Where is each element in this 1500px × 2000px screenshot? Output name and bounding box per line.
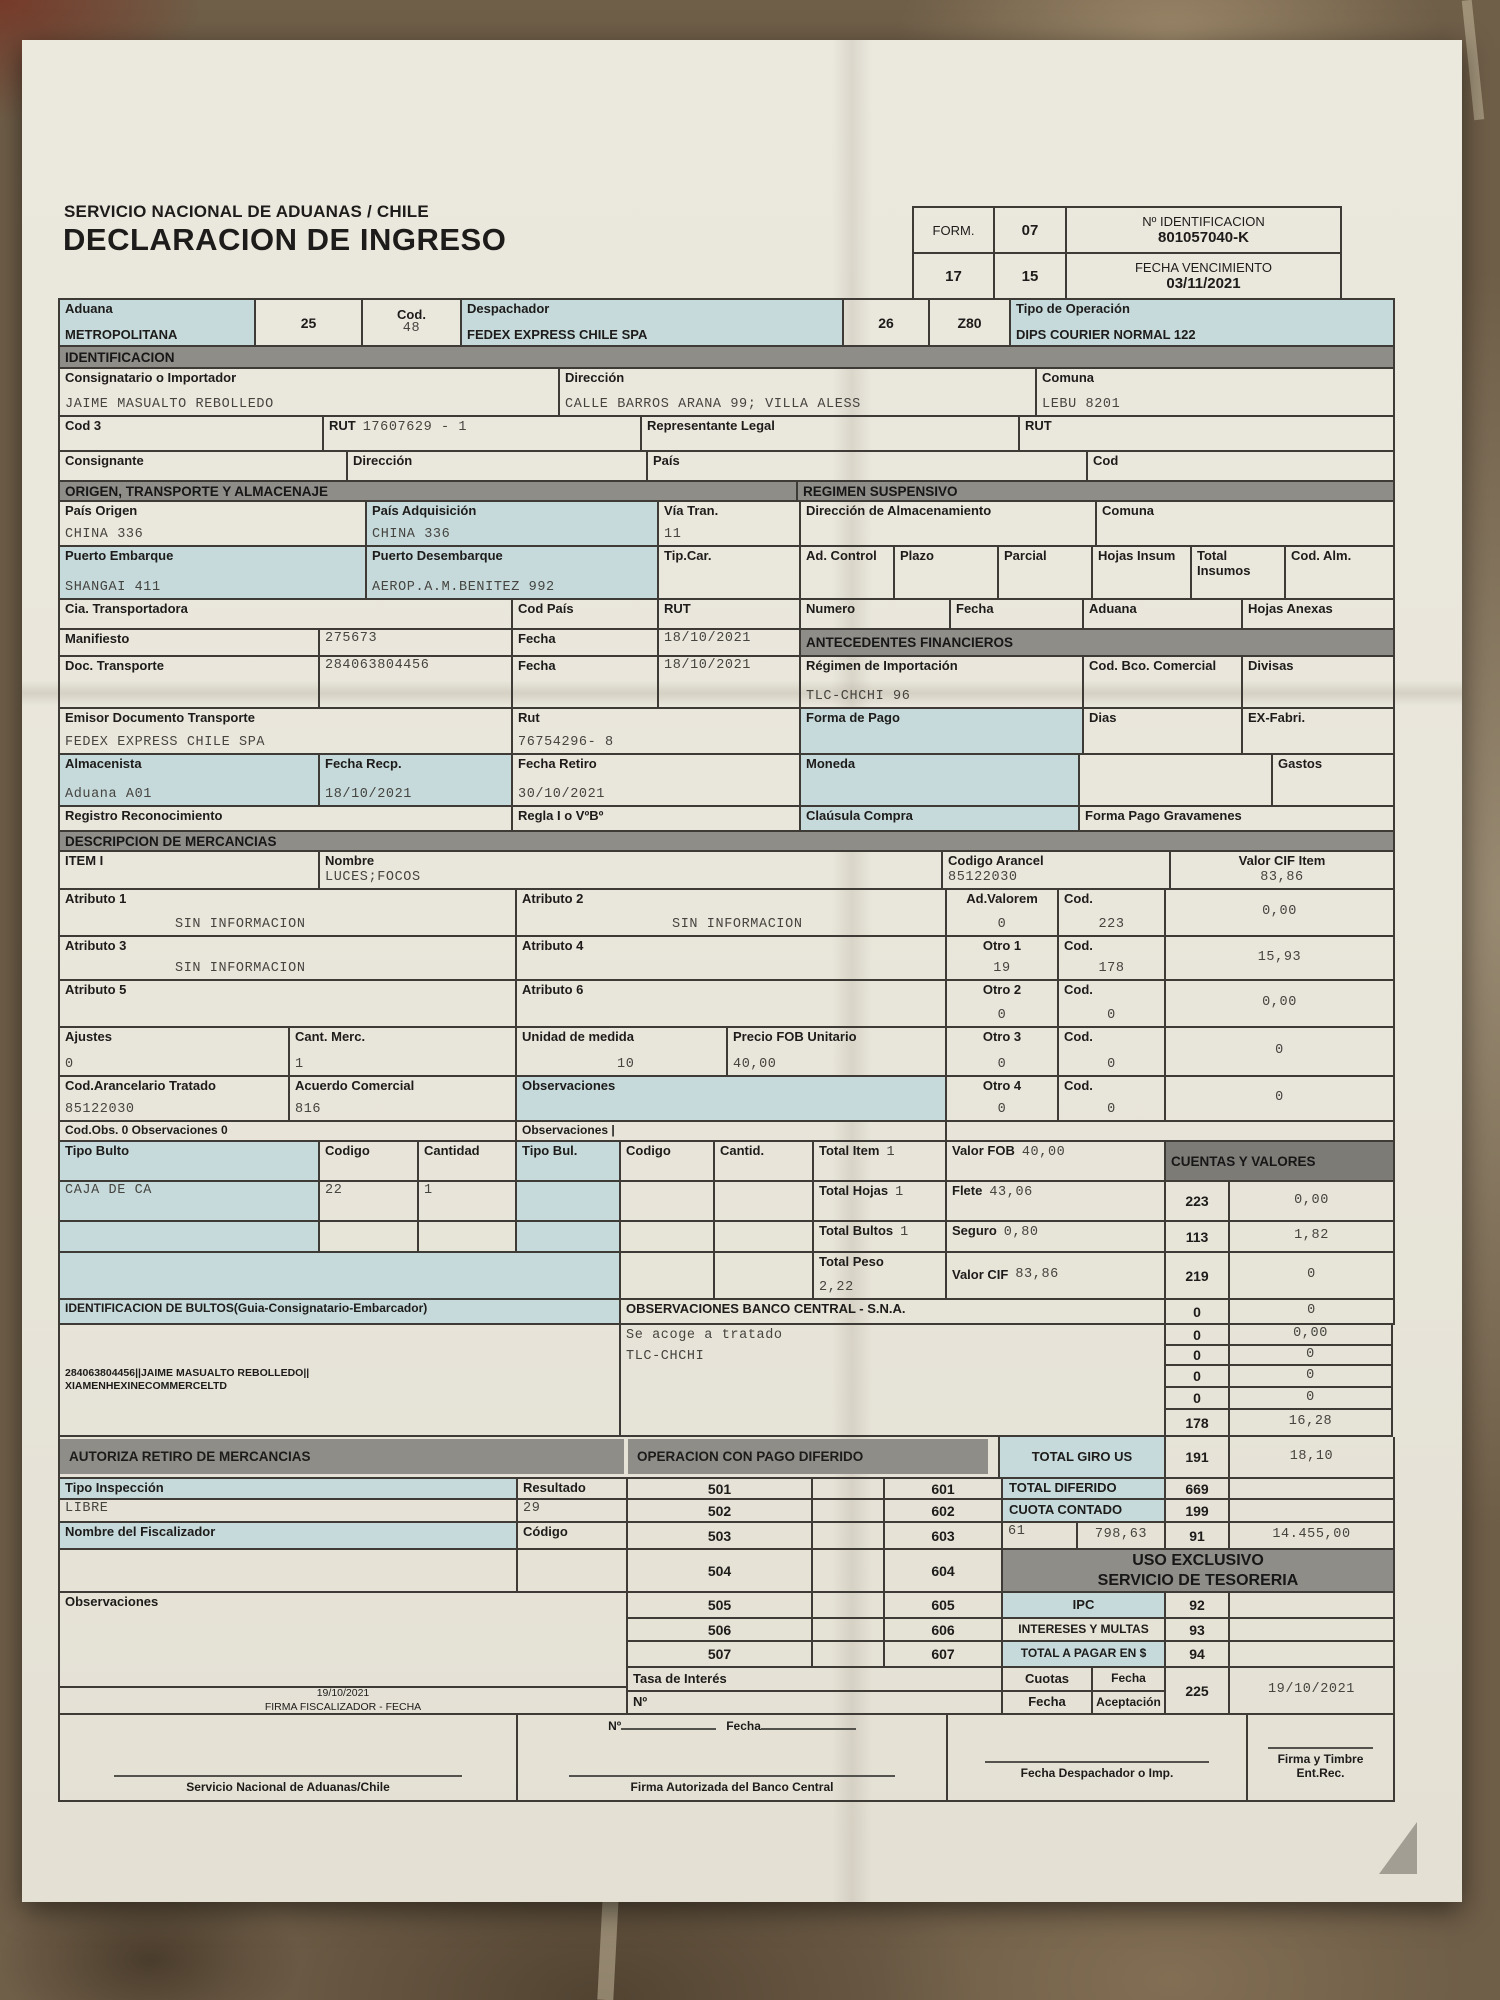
field-cod-48: Cod.48 bbox=[363, 300, 462, 347]
codigo-607: 607 bbox=[883, 1642, 1003, 1668]
table-row: Total Bultos1 Seguro0,80 113 1,82 bbox=[58, 1222, 1395, 1253]
empty-cell bbox=[58, 1253, 621, 1300]
box-15: 15 bbox=[993, 254, 1065, 298]
cuenta-valor-219: 0 bbox=[1230, 1253, 1395, 1300]
field-nombre-mercancia: NombreLUCES;FOCOS bbox=[320, 852, 943, 890]
field-item: ITEM I bbox=[58, 852, 320, 890]
empty-cell bbox=[1230, 1593, 1395, 1619]
codigo-507: 507 bbox=[628, 1642, 813, 1668]
field-atributo-6: Atributo 6 bbox=[517, 981, 947, 1028]
document-title: DECLARACION DE INGRESO bbox=[63, 222, 506, 258]
table-row: Atributo 5 Atributo 6 Otro 20 Cod.0 0,00 bbox=[58, 981, 1395, 1028]
field-total-pagar: TOTAL A PAGAR EN $ bbox=[1003, 1642, 1166, 1668]
empty-cell bbox=[518, 1550, 628, 1593]
field-codigo-bulto-value: 22 bbox=[320, 1182, 419, 1222]
empty-cell bbox=[1230, 1619, 1395, 1642]
field-tipo-inspeccion-value: LIBRE bbox=[58, 1500, 518, 1523]
field-cod3: Cod 3 bbox=[58, 417, 324, 452]
field-rut-cia: RUT bbox=[659, 600, 801, 630]
table-row: Cod.Arancelario Tratado85122030 Acuerdo … bbox=[58, 1077, 1395, 1122]
codigo-603: 603 bbox=[883, 1523, 1003, 1550]
field-z80: Z80 bbox=[930, 300, 1011, 347]
field-forma-de-pago: Forma de Pago bbox=[801, 709, 1084, 755]
field-fecha-retiro: Fecha Retiro30/10/2021 bbox=[513, 755, 801, 807]
field-direccion-consignante: Dirección bbox=[348, 452, 648, 482]
codigo-604: 604 bbox=[883, 1550, 1003, 1593]
field-cod-arancelario-tratado: Cod.Arancelario Tratado85122030 bbox=[58, 1077, 290, 1122]
cuenta-valor-4: 0 bbox=[1230, 1300, 1395, 1325]
cuenta-codigo-178: 178 bbox=[1166, 1410, 1230, 1437]
table-row: Observaciones 505 605 IPC 92 bbox=[58, 1593, 1395, 1619]
field-ad-valorem: Ad.Valorem0 bbox=[947, 890, 1059, 937]
photo-of-customs-form: { "page": { "agency": "SERVICIO NACIONAL… bbox=[0, 0, 1500, 2000]
field-fecha-doc: Fecha bbox=[513, 657, 659, 709]
empty-cell bbox=[947, 1122, 1395, 1142]
tile-grout-line bbox=[1462, 0, 1484, 120]
field-aduana-2: Aduana bbox=[1084, 600, 1243, 630]
numero-fecha-line: Nº Fecha bbox=[523, 1719, 941, 1733]
signature-line bbox=[1268, 1747, 1373, 1749]
codigo-602: 602 bbox=[883, 1500, 1003, 1523]
codigo-606: 606 bbox=[883, 1619, 1003, 1642]
codigo-225: 225 bbox=[1166, 1668, 1230, 1715]
empty-cell bbox=[58, 1642, 628, 1668]
field-valor-cif-item: Valor CIF Item83,86 bbox=[1171, 852, 1395, 890]
section-descripcion-mercancias: DESCRIPCION DE MERCANCIAS bbox=[58, 832, 1395, 852]
field-aduana: AduanaMETROPOLITANA bbox=[58, 300, 256, 347]
field-clausula-compra: Claúsula Compra bbox=[801, 807, 1080, 832]
section-uso-exclusivo-tesoreria: USO EXCLUSIVO SERVICIO DE TESORERIA bbox=[1003, 1550, 1395, 1593]
field-comuna: ComunaLEBU 8201 bbox=[1037, 369, 1395, 417]
empty-cell bbox=[1230, 1500, 1395, 1523]
field-pais-origen: País OrigenCHINA 336 bbox=[58, 502, 367, 547]
cuenta-codigo-6: 0 bbox=[1166, 1346, 1230, 1366]
table-row: Atributo 3SIN INFORMACION Atributo 4 Otr… bbox=[58, 937, 1395, 981]
cuenta-valor-191: 18,10 bbox=[1230, 1437, 1395, 1479]
section-origen-transporte: ORIGEN, TRANSPORTE Y ALMACENAJE bbox=[58, 482, 798, 502]
field-cod-otro3: Cod.0 bbox=[1059, 1028, 1166, 1077]
identification-number-cell: Nº IDENTIFICACION 801057040-K bbox=[1065, 208, 1340, 252]
field-valor-4: 0 bbox=[1166, 1028, 1395, 1077]
tile-grout-line bbox=[597, 1896, 618, 2000]
cuenta-valor-7: 0 bbox=[1230, 1366, 1393, 1388]
gap-cell bbox=[813, 1479, 883, 1500]
field-aduana-value: METROPOLITANA bbox=[65, 328, 249, 343]
field-direccion: DirecciónCALLE BARROS ARANA 99; VILLA AL… bbox=[560, 369, 1037, 417]
table-row: Ajustes0 Cant. Merc.1 Unidad de medida10… bbox=[58, 1028, 1395, 1077]
declaration-table: AduanaMETROPOLITANA 25 Cod.48 Despachado… bbox=[58, 298, 1395, 1802]
field-total-item: Total Item1 bbox=[814, 1142, 947, 1182]
field-regimen-importacion: Régimen de ImportaciónTLC-CHCHI 96 bbox=[801, 657, 1084, 709]
field-cod-consignante: Cod bbox=[1088, 452, 1395, 482]
cuenta-codigo-191: 191 bbox=[1166, 1437, 1230, 1479]
field-fecha-aceptacion: Fecha Aceptación bbox=[1093, 1668, 1166, 1715]
due-date-label: FECHA VENCIMIENTO bbox=[1135, 260, 1272, 275]
box-17: 17 bbox=[914, 254, 993, 298]
cuenta-valor-6: 0 bbox=[1230, 1346, 1393, 1366]
gap-cell bbox=[813, 1523, 883, 1550]
gap-cell bbox=[813, 1550, 883, 1593]
section-regimen-suspensivo: REGIMEN SUSPENSIVO bbox=[798, 482, 1395, 502]
codigo-506: 506 bbox=[628, 1619, 813, 1642]
field-cod-otro4: Cod.0 bbox=[1059, 1077, 1166, 1122]
table-row: Tipo Inspección Resultado 501 601 TOTAL … bbox=[58, 1479, 1395, 1500]
field-forma-pago-gravamenes: Forma Pago Gravamenes bbox=[1080, 807, 1395, 832]
codigo-505: 505 bbox=[628, 1593, 813, 1619]
field-ad-control: Ad. Control bbox=[801, 547, 895, 600]
field-plazo: Plazo bbox=[895, 547, 999, 600]
cuenta-valor-113: 1,82 bbox=[1230, 1222, 1395, 1253]
table-row: 284063804456||JAIME MASUALTO REBOLLEDO||… bbox=[58, 1325, 1395, 1437]
field-moneda: Moneda bbox=[801, 755, 1080, 807]
field-codigo-bulto-2: Codigo bbox=[621, 1142, 715, 1182]
table-row: ITEM I NombreLUCES;FOCOS Codigo Arancel8… bbox=[58, 852, 1395, 890]
signature-box-aduanas: Servicio Nacional de Aduanas/Chile bbox=[58, 1715, 518, 1802]
field-atributo-3: Atributo 3SIN INFORMACION bbox=[58, 937, 517, 981]
cuenta-valor-223: 0,00 bbox=[1230, 1182, 1395, 1222]
field-regla: Regla I o VºBº bbox=[513, 807, 801, 832]
field-total-hojas: Total Hojas1 bbox=[814, 1182, 947, 1222]
codigo-199: 199 bbox=[1166, 1500, 1230, 1523]
field-observaciones-mercancia: Observaciones bbox=[517, 1077, 947, 1122]
gap-cell bbox=[813, 1500, 883, 1523]
field-valor-1: 0,00 bbox=[1166, 890, 1395, 937]
field-resultado: Resultado bbox=[518, 1479, 628, 1500]
field-gastos: Gastos bbox=[1273, 755, 1395, 807]
table-row: Consignante Dirección País Cod bbox=[58, 452, 1395, 482]
field-tipo-bulto-2: Tipo Bul. bbox=[517, 1142, 621, 1182]
blank-line bbox=[761, 1728, 856, 1730]
field-fecha-manifiesto-value: 18/10/2021 bbox=[659, 630, 801, 657]
field-parcial: Parcial bbox=[999, 547, 1093, 600]
field-otro-1: Otro 119 bbox=[947, 937, 1059, 981]
field-total-peso: Total Peso2,22 bbox=[814, 1253, 947, 1300]
field-valor-2: 15,93 bbox=[1166, 937, 1395, 981]
field-cantidad-mercancia: Cant. Merc.1 bbox=[290, 1028, 517, 1077]
field-fecha-recepcion: Fecha Recp.18/10/2021 bbox=[320, 755, 513, 807]
table-row: AUTORIZA RETIRO DE MERCANCIAS OPERACION … bbox=[58, 1437, 1395, 1479]
field-atributo-5: Atributo 5 bbox=[58, 981, 517, 1028]
cuenta-codigo-5: 0 bbox=[1166, 1325, 1230, 1346]
section-operacion-pago-diferido: OPERACION CON PAGO DIFERIDO bbox=[628, 1437, 998, 1479]
field-rut-representante: RUT bbox=[1020, 417, 1395, 452]
table-row: IDENTIFICACION bbox=[58, 347, 1395, 369]
field-tipo-bulto: Tipo Bulto bbox=[58, 1142, 320, 1182]
cuenta-valor-5: 0,00 bbox=[1230, 1325, 1393, 1346]
field-flete: Flete43,06 bbox=[947, 1182, 1166, 1222]
cuenta-codigo-8: 0 bbox=[1166, 1388, 1230, 1410]
field-identificacion-bultos: IDENTIFICACION DE BULTOS(Guia-Consignata… bbox=[58, 1300, 621, 1325]
empty-cell bbox=[1230, 1642, 1395, 1668]
field-ajustes: Ajustes0 bbox=[58, 1028, 290, 1077]
field-valor-fob-total: Valor FOB40,00 bbox=[947, 1142, 1166, 1182]
field-despachador-value: FEDEX EXPRESS CHILE SPA bbox=[467, 328, 837, 343]
field-codigo-bulto: Codigo bbox=[320, 1142, 419, 1182]
cuenta-codigo-223: 223 bbox=[1166, 1182, 1230, 1222]
field-dias: Dias bbox=[1084, 709, 1243, 755]
field-total-bultos: Total Bultos1 bbox=[814, 1222, 947, 1253]
empty-cell bbox=[715, 1253, 814, 1300]
field-cuota-contado: CUOTA CONTADO bbox=[1003, 1500, 1166, 1523]
blank-line bbox=[621, 1728, 716, 1730]
codigo-93: 93 bbox=[1166, 1619, 1230, 1642]
field-cuotas-fecha: Cuotas Fecha bbox=[1003, 1668, 1093, 1715]
field-tipo-inspeccion: Tipo Inspección bbox=[58, 1479, 518, 1500]
empty-cell bbox=[621, 1182, 715, 1222]
field-doc-transporte-value: 284063804456 bbox=[320, 657, 513, 709]
table-row: Registro Reconocimiento Regla I o VºBº C… bbox=[58, 807, 1395, 832]
gap-cell bbox=[813, 1642, 883, 1668]
field-almacenista: AlmacenistaAduana A01 bbox=[58, 755, 320, 807]
field-unidad-medida: Unidad de medida10 bbox=[517, 1028, 728, 1077]
field-valor-5: 0 bbox=[1166, 1077, 1395, 1122]
table-row: Tipo Bulto Codigo Cantidad Tipo Bul. Cod… bbox=[58, 1142, 1395, 1182]
empty-cell bbox=[58, 1550, 518, 1593]
field-hojas-insum: Hojas Insum bbox=[1093, 547, 1192, 600]
table-row: 506 606 INTERESES Y MULTAS 93 bbox=[58, 1619, 1395, 1642]
empty-cell bbox=[621, 1222, 715, 1253]
field-fecha: Fecha bbox=[951, 600, 1084, 630]
field-aduana-code: 25 bbox=[256, 300, 363, 347]
table-row: AduanaMETROPOLITANA 25 Cod.48 Despachado… bbox=[58, 300, 1395, 347]
field-atributo-2: Atributo 2SIN INFORMACION bbox=[517, 890, 947, 937]
field-hojas-anexas: Hojas Anexas bbox=[1243, 600, 1395, 630]
field-cia-transportadora: Cia. Transportadora bbox=[58, 600, 513, 630]
form-value: 07 bbox=[1022, 222, 1039, 239]
empty-cell bbox=[715, 1182, 814, 1222]
table-row: Nombre del Fiscalizador Código 503 603 6… bbox=[58, 1523, 1395, 1550]
firma-fiscalizador-area: 19/10/2021 FIRMA FISCALIZADOR - FECHA bbox=[58, 1668, 628, 1715]
codigo-94: 94 bbox=[1166, 1642, 1230, 1668]
field-rut-emisor: Rut76754296- 8 bbox=[513, 709, 801, 755]
empty-cell bbox=[320, 1222, 419, 1253]
agency-title: SERVICIO NACIONAL DE ADUANAS / CHILE bbox=[64, 202, 429, 222]
field-comuna-value: LEBU 8201 bbox=[1042, 398, 1388, 413]
empty-space bbox=[60, 1668, 626, 1686]
field-otro-2: Otro 20 bbox=[947, 981, 1059, 1028]
field-ipc: IPC bbox=[1003, 1593, 1166, 1619]
codigo-504: 504 bbox=[628, 1550, 813, 1593]
field-manifiesto-value: 275673 bbox=[320, 630, 513, 657]
field-consignante: Consignante bbox=[58, 452, 348, 482]
field-otro-3: Otro 30 bbox=[947, 1028, 1059, 1077]
section-cuentas-valores: CUENTAS Y VALORES bbox=[1166, 1142, 1395, 1182]
field-valor-cif-total: Valor CIF83,86 bbox=[947, 1253, 1166, 1300]
field-cod-banco-comercial: Cod. Bco. Comercial bbox=[1084, 657, 1243, 709]
codigo-91: 91 bbox=[1166, 1523, 1230, 1550]
table-row: AlmacenistaAduana A01 Fecha Recp.18/10/2… bbox=[58, 755, 1395, 807]
field-pais-consignante: País bbox=[648, 452, 1088, 482]
section-autoriza-retiro: AUTORIZA RETIRO DE MERCANCIAS bbox=[58, 1437, 628, 1479]
table-row: 19/10/2021 FIRMA FISCALIZADOR - FECHA Ta… bbox=[58, 1668, 1395, 1715]
due-date-cell: FECHA VENCIMIENTO 03/11/2021 bbox=[1065, 254, 1340, 298]
form-label: FORM. bbox=[933, 223, 975, 238]
field-identificacion-bultos-value: 284063804456||JAIME MASUALTO REBOLLEDO||… bbox=[58, 1325, 621, 1437]
field-comuna-almacenamiento: Comuna bbox=[1097, 502, 1395, 547]
field-cod-obs: Cod.Obs. 0 Observaciones 0 bbox=[58, 1122, 517, 1142]
identification-value: 801057040-K bbox=[1158, 229, 1249, 246]
codigo-502: 502 bbox=[628, 1500, 813, 1523]
field-cod-almacen: Cod. Alm. bbox=[1286, 547, 1395, 600]
cuenta-codigo-7: 0 bbox=[1166, 1366, 1230, 1388]
form-value-cell: 07 bbox=[993, 208, 1065, 252]
field-codigo-fiscalizador: Código bbox=[518, 1523, 628, 1550]
field-cod-223: Cod.223 bbox=[1059, 890, 1166, 937]
field-banco-central-texto: Se acoge a tratado TLC-CHCHI bbox=[621, 1325, 1166, 1437]
table-row: 507 607 TOTAL A PAGAR EN $ 94 bbox=[58, 1642, 1395, 1668]
codigo-601: 601 bbox=[883, 1479, 1003, 1500]
signature-box-despachador: Fecha Despachador o Imp. bbox=[948, 1715, 1248, 1802]
empty-cell bbox=[621, 1253, 715, 1300]
cuenta-codigo-4: 0 bbox=[1166, 1300, 1230, 1325]
codigo-605: 605 bbox=[883, 1593, 1003, 1619]
field-firma-fiscalizador: 19/10/2021 FIRMA FISCALIZADOR - FECHA bbox=[60, 1686, 626, 1713]
codigo-669: 669 bbox=[1166, 1479, 1230, 1500]
field-seguro: Seguro0,80 bbox=[947, 1222, 1166, 1253]
section-identificacion: IDENTIFICACION bbox=[58, 347, 1395, 369]
table-row: ORIGEN, TRANSPORTE Y ALMACENAJE REGIMEN … bbox=[58, 482, 1395, 502]
field-codigo-arancel: Codigo Arancel85122030 bbox=[943, 852, 1171, 890]
field-ex-fabrica: EX-Fabri. bbox=[1243, 709, 1395, 755]
field-divisas: Divisas bbox=[1243, 657, 1395, 709]
codigo-501: 501 bbox=[628, 1479, 813, 1500]
signature-line bbox=[569, 1775, 895, 1777]
table-row: Cod.Obs. 0 Observaciones 0 Observaciones… bbox=[58, 1122, 1395, 1142]
cuenta-valor-178: 16,28 bbox=[1230, 1410, 1393, 1437]
identification-label: Nº IDENTIFICACION bbox=[1142, 214, 1264, 229]
field-intereses-multas: INTERESES Y MULTAS bbox=[1003, 1619, 1166, 1642]
field-emisor-doc-transporte: Emisor Documento TransporteFEDEX EXPRESS… bbox=[58, 709, 513, 755]
table-row: CAJA DE CA 22 1 Total Hojas1 Flete43,06 … bbox=[58, 1182, 1395, 1222]
field-resultado-value: 29 bbox=[518, 1500, 628, 1523]
table-row: 504 604 USO EXCLUSIVO SERVICIO DE TESORE… bbox=[58, 1550, 1395, 1593]
due-date-value: 03/11/2021 bbox=[1166, 275, 1240, 292]
field-valor-3: 0,00 bbox=[1166, 981, 1395, 1028]
field-tasa-interes: Tasa de Interés Nº bbox=[628, 1668, 1003, 1715]
signature-box-timbre: Firma y Timbre Ent.Rec. bbox=[1248, 1715, 1395, 1802]
field-otro-4: Otro 40 bbox=[947, 1077, 1059, 1122]
cuenta-codigo-219: 219 bbox=[1166, 1253, 1230, 1300]
empty-cell bbox=[419, 1222, 517, 1253]
table-row: Servicio Nacional de Aduanas/Chile Nº Fe… bbox=[58, 1715, 1395, 1802]
table-row: Doc. Transporte 284063804456 Fecha 18/10… bbox=[58, 657, 1395, 709]
cuenta-codigo-113: 113 bbox=[1166, 1222, 1230, 1253]
field-fecha-doc-value: 18/10/2021 bbox=[659, 657, 801, 709]
field-representante-legal: Representante Legal bbox=[642, 417, 1020, 452]
empty-cell bbox=[58, 1619, 628, 1642]
empty-cell bbox=[1230, 1479, 1395, 1500]
table-row: LIBRE 29 502 602 CUOTA CONTADO 199 bbox=[58, 1500, 1395, 1523]
cuentas-sub-column: 00,00 00 00 00 17816,28 bbox=[1166, 1325, 1393, 1437]
field-consignatario: Consignatario o ImportadorJAIME MASUALTO… bbox=[58, 369, 560, 417]
table-row: DESCRIPCION DE MERCANCIAS bbox=[58, 832, 1395, 852]
field-tipo-operacion-value: DIPS COURIER NORMAL 122 bbox=[1016, 328, 1388, 343]
field-atributo-4: Atributo 4 bbox=[517, 937, 947, 981]
field-tasa-numero: Nº bbox=[628, 1690, 1001, 1713]
field-tipo-operacion: Tipo de OperaciónDIPS COURIER NORMAL 122 bbox=[1011, 300, 1395, 347]
codigo-92: 92 bbox=[1166, 1593, 1230, 1619]
field-consignatario-value: JAIME MASUALTO REBOLLEDO bbox=[65, 398, 553, 413]
section-antecedentes-financieros: ANTECEDENTES FINANCIEROS bbox=[801, 630, 1395, 657]
field-direccion-value: CALLE BARROS ARANA 99; VILLA ALESS bbox=[565, 398, 1030, 413]
cuenta-valor-8: 0 bbox=[1230, 1388, 1393, 1410]
field-cod-178: Cod.178 bbox=[1059, 937, 1166, 981]
gap-cell bbox=[813, 1593, 883, 1619]
form-label-cell: FORM. bbox=[914, 208, 993, 252]
gap-cell bbox=[813, 1619, 883, 1642]
table-row: Cod 3 RUT17607629 - 1 Representante Lega… bbox=[58, 417, 1395, 452]
signature-line bbox=[985, 1761, 1210, 1763]
empty-cell bbox=[517, 1182, 621, 1222]
field-puerto-embarque: Puerto EmbarqueSHANGAI 411 bbox=[58, 547, 367, 600]
field-observaciones-banco-central: OBSERVACIONES BANCO CENTRAL - S.N.A. bbox=[621, 1300, 1166, 1325]
field-fecha-manifiesto: Fecha bbox=[513, 630, 659, 657]
field-total-giro-us: TOTAL GIRO US bbox=[998, 1437, 1166, 1479]
field-26: 26 bbox=[844, 300, 930, 347]
empty-cell bbox=[715, 1222, 814, 1253]
field-tipo-bulto-value: CAJA DE CA bbox=[58, 1182, 320, 1222]
table-row: Emisor Documento TransporteFEDEX EXPRESS… bbox=[58, 709, 1395, 755]
field-via-transporte: Vía Tran.11 bbox=[659, 502, 801, 547]
field-doc-transporte: Doc. Transporte bbox=[58, 657, 320, 709]
table-row: Manifiesto 275673 Fecha 18/10/2021 ANTEC… bbox=[58, 630, 1395, 657]
field-cantidad-bulto-value: 1 bbox=[419, 1182, 517, 1222]
field-atributo-1: Atributo 1SIN INFORMACION bbox=[58, 890, 517, 937]
codigo-503: 503 bbox=[628, 1523, 813, 1550]
empty-cell bbox=[517, 1222, 621, 1253]
field-tipo-carga: Tip.Car. bbox=[659, 547, 801, 600]
paper-fold-corner bbox=[1379, 1822, 1417, 1874]
field-puerto-desembarque: Puerto DesembarqueAEROP.A.M.BENITEZ 992 bbox=[367, 547, 659, 600]
table-row: País OrigenCHINA 336 País AdquisiciónCHI… bbox=[58, 502, 1395, 547]
table-row: Total Peso2,22 Valor CIF83,86 219 0 bbox=[58, 1253, 1395, 1300]
table-row: Atributo 1SIN INFORMACION Atributo 2SIN … bbox=[58, 890, 1395, 937]
field-observaciones-2: Observaciones | bbox=[517, 1122, 947, 1142]
table-row: Puerto EmbarqueSHANGAI 411 Puerto Desemb… bbox=[58, 547, 1395, 600]
field-nombre-fiscalizador: Nombre del Fiscalizador bbox=[58, 1523, 518, 1550]
empty-cell bbox=[1080, 755, 1273, 807]
field-rut-importador: RUT17607629 - 1 bbox=[324, 417, 642, 452]
field-total-insumos: Total Insumos bbox=[1192, 547, 1286, 600]
field-cod-pais: Cod País bbox=[513, 600, 659, 630]
field-pais-adquisicion: País AdquisiciónCHINA 336 bbox=[367, 502, 659, 547]
field-total-14455: 14.455,00 bbox=[1230, 1523, 1395, 1550]
field-acuerdo-comercial: Acuerdo Comercial816 bbox=[290, 1077, 517, 1122]
form-number-box: FORM. 07 Nº IDENTIFICACION 801057040-K 1… bbox=[912, 206, 1342, 300]
field-precio-fob-unitario: Precio FOB Unitario40,00 bbox=[728, 1028, 947, 1077]
table-row: Cia. Transportadora Cod País RUT Numero … bbox=[58, 600, 1395, 630]
field-cantidad-bulto-2: Cantid. bbox=[715, 1142, 814, 1182]
signature-box-banco-central: Nº Fecha Firma Autorizada del Banco Cent… bbox=[518, 1715, 948, 1802]
field-numero: Numero bbox=[801, 600, 951, 630]
field-cod-otro2: Cod.0 bbox=[1059, 981, 1166, 1028]
field-cantidad-bulto: Cantidad bbox=[419, 1142, 517, 1182]
field-observaciones-inspeccion: Observaciones bbox=[58, 1593, 628, 1619]
table-row: Consignatario o ImportadorJAIME MASUALTO… bbox=[58, 369, 1395, 417]
field-fecha-aceptacion-value: 19/10/2021 bbox=[1230, 1668, 1395, 1715]
signature-line bbox=[114, 1775, 462, 1777]
field-registro-reconocimiento: Registro Reconocimiento bbox=[58, 807, 513, 832]
field-total-diferido: TOTAL DIFERIDO bbox=[1003, 1479, 1166, 1500]
field-61: 61 bbox=[1003, 1523, 1078, 1550]
field-manifiesto: Manifiesto bbox=[58, 630, 320, 657]
field-798: 798,63 bbox=[1078, 1523, 1166, 1550]
field-despachador: DespachadorFEDEX EXPRESS CHILE SPA bbox=[462, 300, 844, 347]
empty-cell bbox=[58, 1222, 320, 1253]
field-direccion-almacenamiento: Dirección de Almacenamiento bbox=[801, 502, 1097, 547]
table-row: IDENTIFICACION DE BULTOS(Guia-Consignata… bbox=[58, 1300, 1395, 1325]
